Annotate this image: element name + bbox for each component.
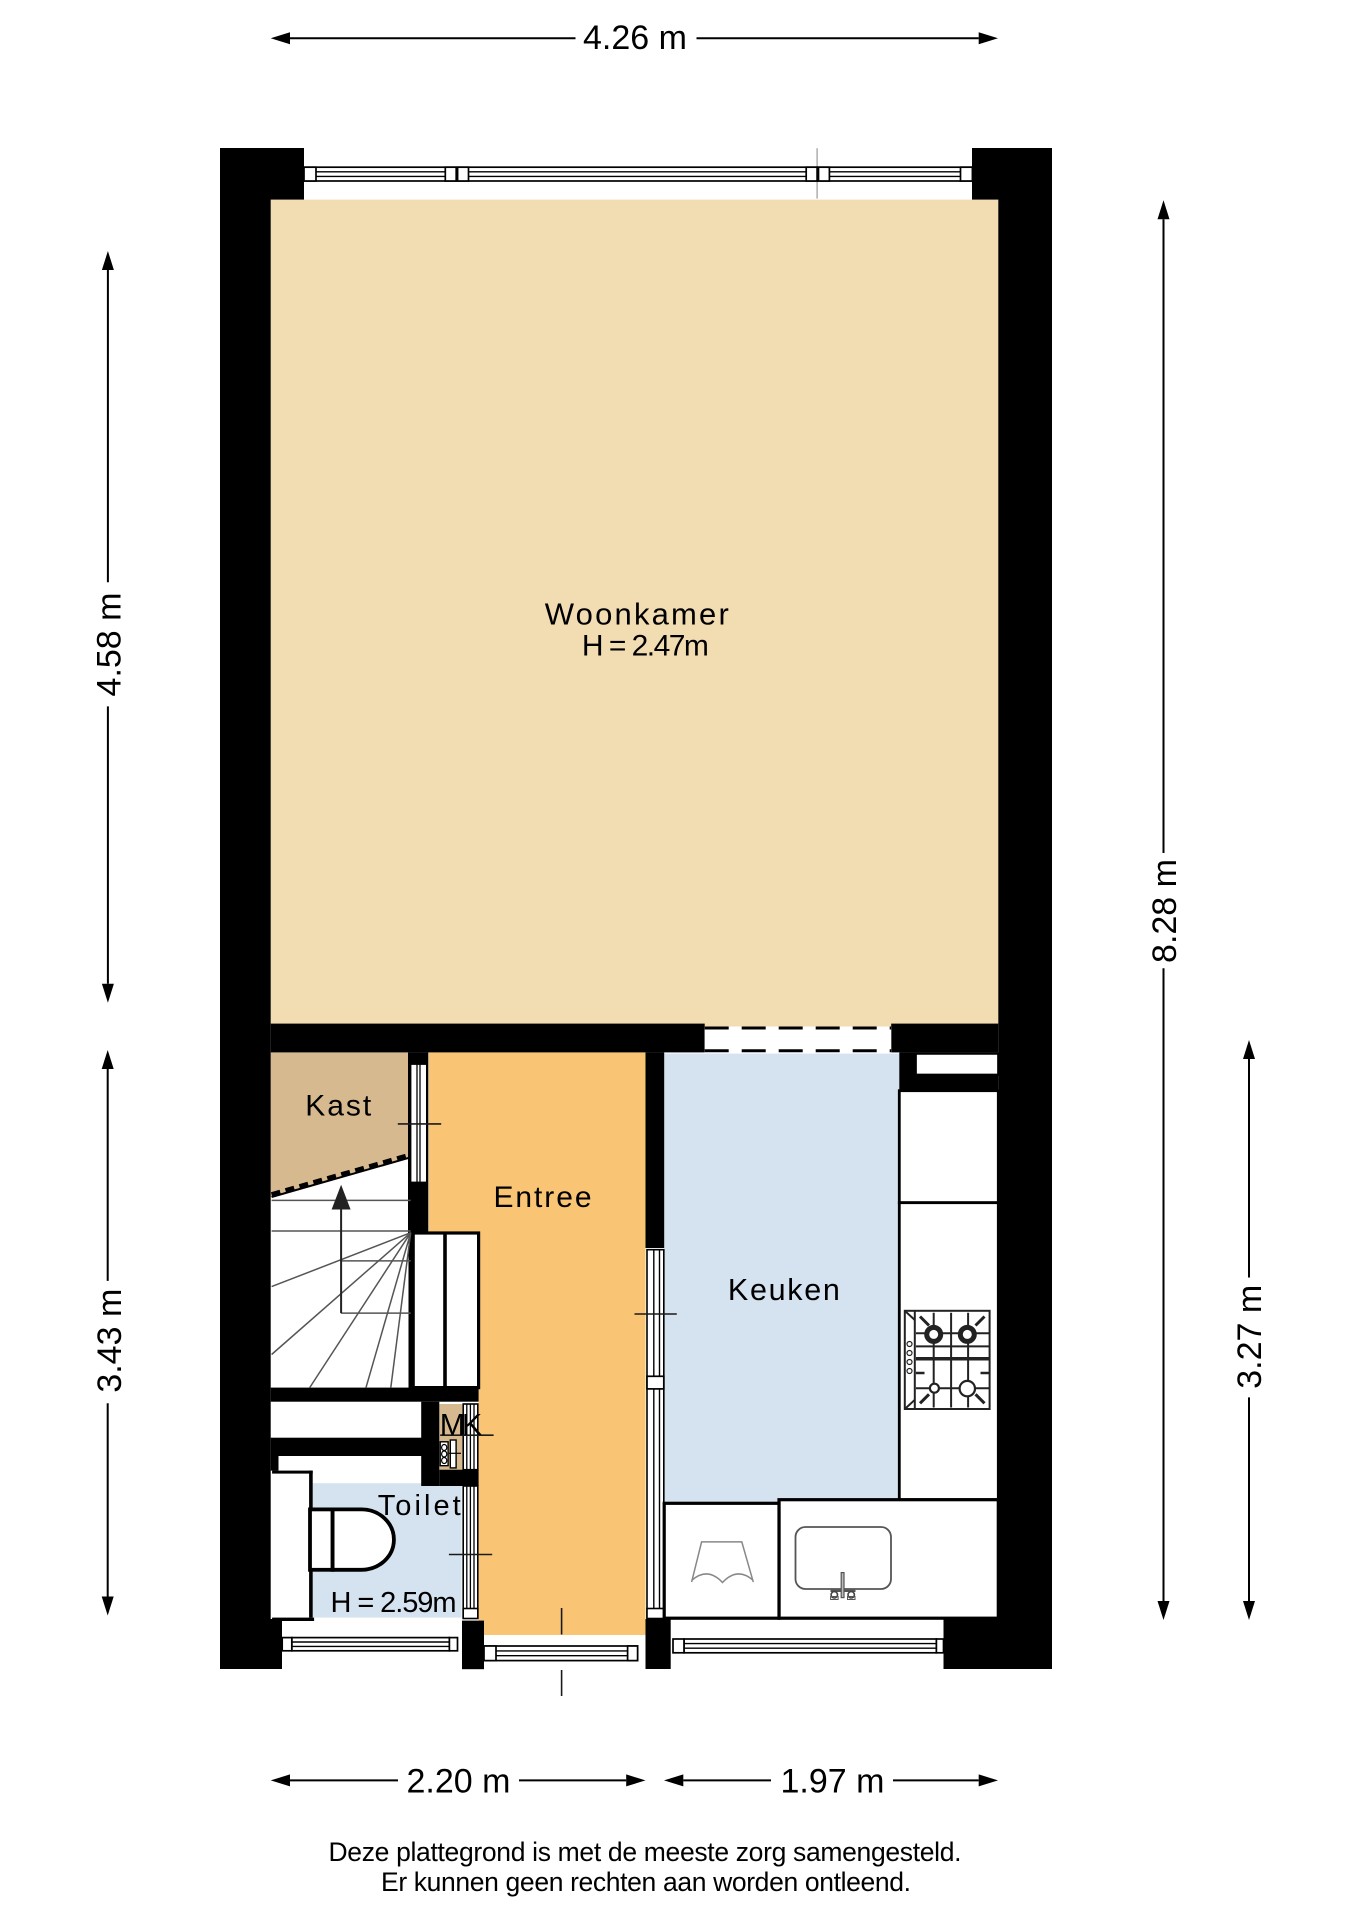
svg-text:Toilet: Toilet <box>378 1490 461 1522</box>
svg-text:Er kunnen geen rechten aan wor: Er kunnen geen rechten aan worden ontlee… <box>381 1867 911 1897</box>
svg-text:MK: MK <box>440 1408 483 1442</box>
svg-text:3.43 m: 3.43 m <box>91 1289 129 1393</box>
svg-text:4.26 m: 4.26 m <box>583 19 687 57</box>
svg-text:H = 2.47m: H = 2.47m <box>582 630 709 663</box>
svg-text:3.27 m: 3.27 m <box>1231 1285 1269 1389</box>
svg-text:8.28 m: 8.28 m <box>1146 859 1184 963</box>
svg-text:1.97 m: 1.97 m <box>781 1763 885 1801</box>
svg-text:4.58 m: 4.58 m <box>90 593 128 697</box>
svg-text:Woonkamer: Woonkamer <box>545 596 729 631</box>
svg-text:Keuken: Keuken <box>728 1273 840 1307</box>
svg-text:Deze plattegrond is met de mee: Deze plattegrond is met de meeste zorg s… <box>329 1837 962 1867</box>
svg-text:H = 2.59m: H = 2.59m <box>331 1587 457 1619</box>
svg-text:2.20 m: 2.20 m <box>407 1763 511 1801</box>
